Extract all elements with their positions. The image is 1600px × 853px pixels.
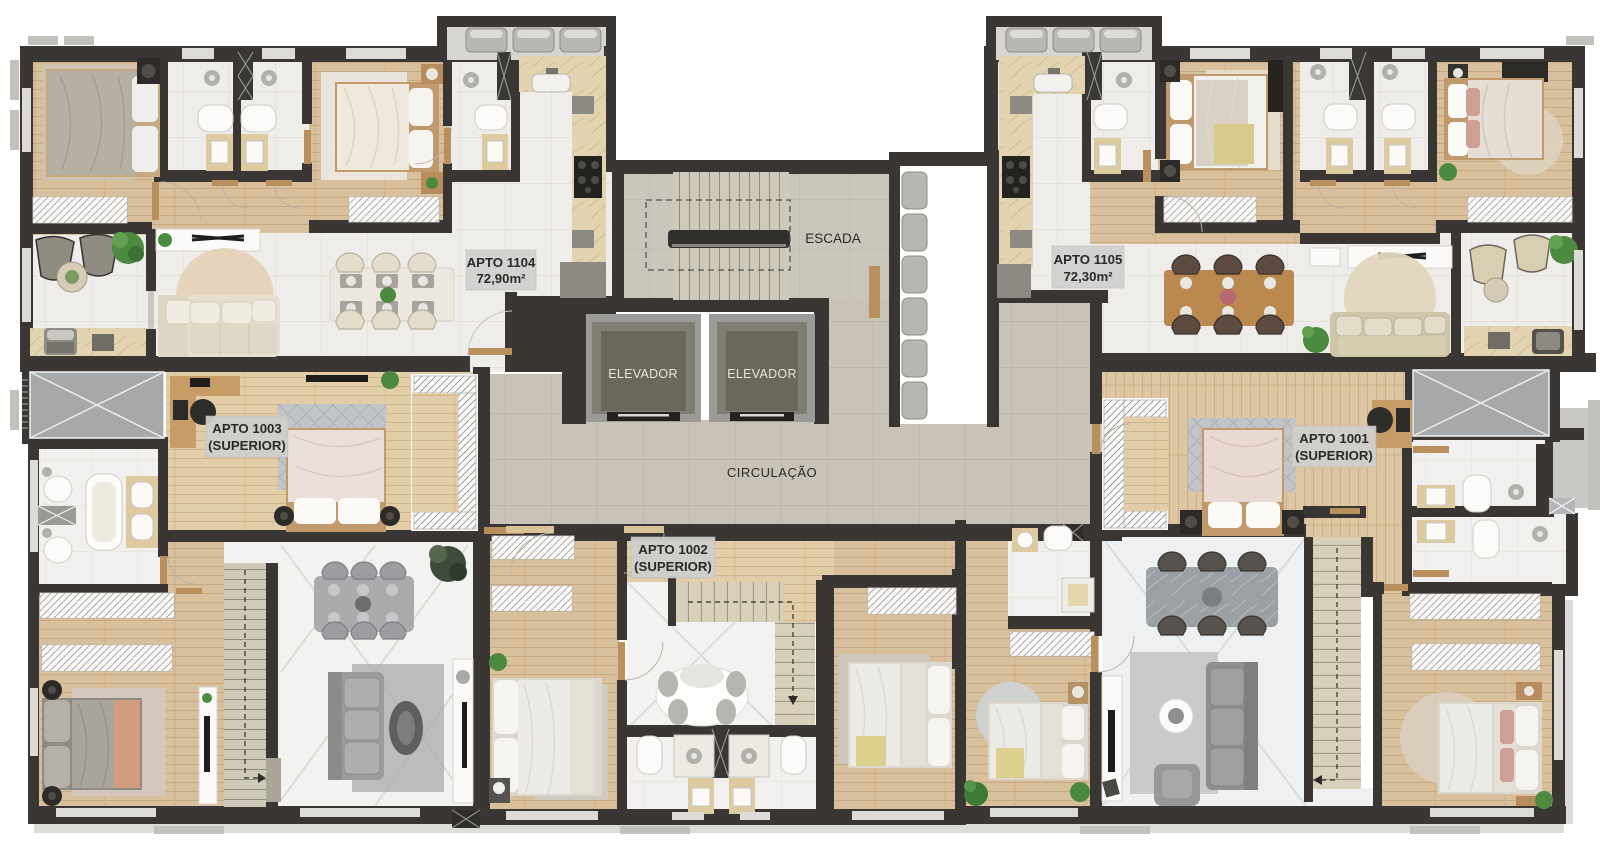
svg-text:(SUPERIOR): (SUPERIOR) [1295,448,1373,463]
svg-text:ELEVADOR: ELEVADOR [727,367,797,381]
svg-text:APTO 1104: APTO 1104 [467,255,536,270]
svg-text:ELEVADOR: ELEVADOR [608,367,678,381]
svg-text:(SUPERIOR): (SUPERIOR) [208,438,286,453]
svg-text:CIRCULAÇÃO: CIRCULAÇÃO [727,465,817,480]
svg-text:APTO 1001: APTO 1001 [1299,431,1368,446]
svg-text:APTO 1003: APTO 1003 [212,421,281,436]
svg-text:72,90m²: 72,90m² [476,271,526,286]
svg-text:ESCADA: ESCADA [805,231,861,246]
svg-text:APTO 1002: APTO 1002 [638,542,707,557]
svg-text:(SUPERIOR): (SUPERIOR) [634,559,712,574]
svg-text:72,30m²: 72,30m² [1063,269,1113,284]
svg-text:APTO 1105: APTO 1105 [1054,252,1123,267]
